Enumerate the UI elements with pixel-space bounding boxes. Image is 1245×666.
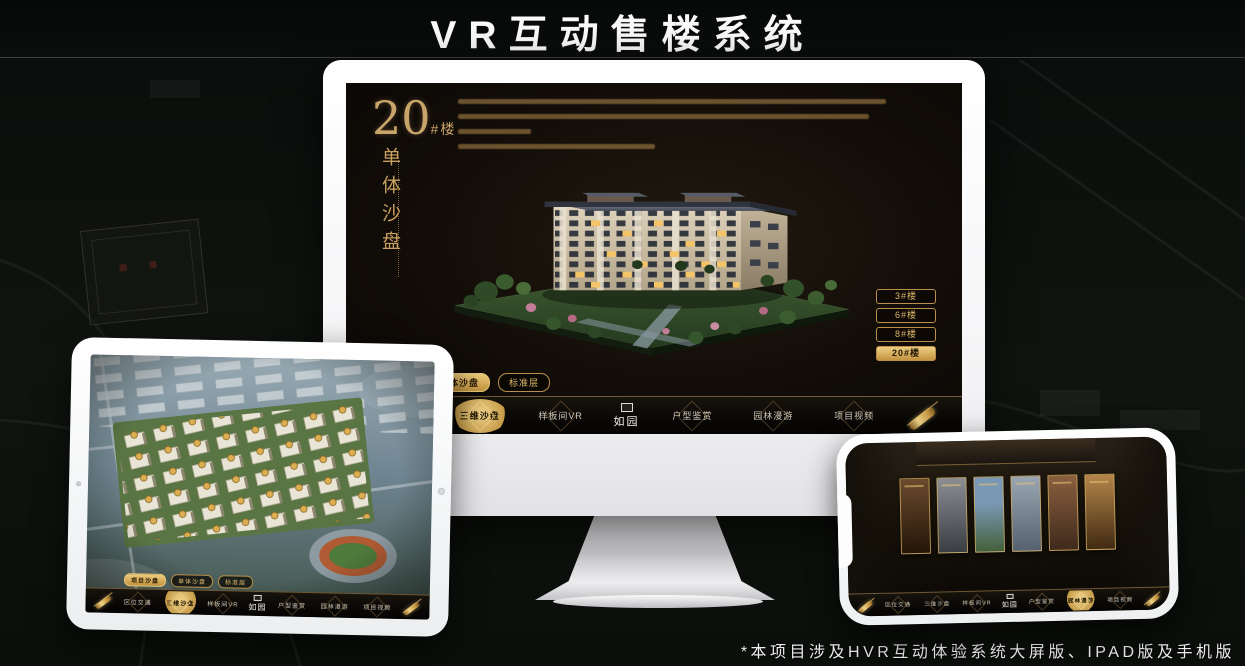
headline-number: 20 [372, 91, 431, 145]
ipad-sub-tabs: 项目沙盘 单体沙盘 标准层 [124, 573, 253, 589]
footnote: *本项目涉及HVR互动体验系统大屏版、IPAD版及手机版 [741, 638, 1235, 662]
nav-item-location[interactable]: 区位交通 [121, 590, 155, 613]
scroll-icon[interactable] [858, 598, 874, 612]
nav-item-showroom-vr[interactable]: 样板间VR [206, 592, 240, 615]
scroll-icon[interactable] [94, 593, 112, 609]
nav-item-showroom-vr[interactable]: 样板间VR [533, 399, 589, 433]
nav-item-3d-sandbox[interactable]: 三维沙盘 [452, 399, 508, 433]
nav-item-floorplans[interactable]: 户型鉴赏 [275, 593, 309, 616]
nav-item-project-video[interactable]: 项目视频 [360, 595, 394, 618]
headline-suffix: #楼 [431, 121, 457, 137]
monitor-stand-base [553, 595, 763, 608]
floor-button-3[interactable]: 3#楼 [876, 289, 936, 304]
scene-panel[interactable] [1084, 474, 1116, 551]
phone-frame: 区位交通 三维沙盘 样板间VR 如园 户型鉴赏 园林漫游 项目视频 [836, 427, 1179, 626]
phone-notch [837, 493, 853, 567]
interior-wall-left [845, 442, 903, 616]
scene-panel[interactable] [1047, 474, 1079, 551]
nav-item-garden-roam[interactable]: 园林漫游 [745, 399, 801, 433]
nav-item-project-video[interactable]: 项目视频 [826, 399, 882, 433]
nav-item-garden-roam[interactable]: 园林漫游 [1066, 590, 1096, 611]
nav-item-garden-roam[interactable]: 园林漫游 [317, 594, 351, 617]
ipad-tab-single-sandbox[interactable]: 单体沙盘 [171, 574, 213, 588]
nav-item-floorplans[interactable]: 户型鉴赏 [1027, 591, 1057, 612]
ipad-home-button[interactable] [438, 488, 445, 495]
floor-button-8[interactable]: 8#楼 [876, 327, 936, 342]
phone-screen: 区位交通 三维沙盘 样板间VR 如园 户型鉴赏 园林漫游 项目视频 [845, 436, 1170, 616]
scene-panel[interactable] [973, 476, 1005, 553]
floor-button-20[interactable]: 20#楼 [876, 346, 936, 361]
ipad-tab-project-sandbox[interactable]: 项目沙盘 [124, 573, 166, 587]
logo-seal-icon [621, 403, 633, 412]
interior-beam [916, 438, 1096, 466]
intro-text-lines [458, 99, 886, 159]
scroll-icon[interactable] [403, 599, 421, 615]
nav-item-project-video[interactable]: 项目视频 [1105, 589, 1135, 610]
logo-seal-icon [1006, 594, 1013, 599]
scroll-icon[interactable] [907, 403, 937, 429]
brand-logo: 如园 [614, 403, 640, 429]
headline-deco-line [398, 157, 399, 277]
brand-logo: 如园 [1002, 594, 1018, 610]
scene-panel-row [899, 474, 1116, 555]
nav-item-3d-sandbox[interactable]: 三维沙盘 [922, 593, 952, 614]
scene-panel[interactable] [1010, 475, 1042, 552]
nav-item-floorplans[interactable]: 户型鉴赏 [664, 399, 720, 433]
nav-item-showroom-vr[interactable]: 样板间VR [961, 592, 993, 613]
page-title: VR互动售楼系统 [0, 4, 1245, 60]
ipad-frame: 项目沙盘 单体沙盘 标准层 区位交通 三维沙盘 样板间VR 如园 户型鉴赏 园林… [66, 337, 454, 637]
building-model-viewport[interactable] [441, 157, 861, 362]
floor-button-group: 3#楼 6#楼 8#楼 20#楼 [876, 289, 936, 361]
nav-item-location[interactable]: 区位交通 [883, 594, 913, 615]
scroll-icon[interactable] [1144, 592, 1160, 606]
tab-standard-floor[interactable]: 标准层 [498, 373, 550, 392]
scene-panel[interactable] [899, 478, 931, 555]
ipad-screen: 项目沙盘 单体沙盘 标准层 区位交通 三维沙盘 样板间VR 如园 户型鉴赏 园林… [85, 354, 434, 619]
brand-logo: 如园 [248, 595, 266, 613]
floor-button-6[interactable]: 6#楼 [876, 308, 936, 323]
interior-wall-right [1111, 436, 1169, 610]
scene-panel[interactable] [936, 477, 968, 554]
ipad-tab-standard-floor[interactable]: 标准层 [218, 575, 253, 589]
ipad-camera-icon [76, 481, 81, 486]
page: VR互动售楼系统 20#楼 单体沙盘 [0, 0, 1245, 666]
logo-seal-icon [254, 595, 262, 601]
nav-item-3d-sandbox[interactable]: 三维沙盘 [163, 591, 197, 614]
model-building [542, 193, 796, 309]
